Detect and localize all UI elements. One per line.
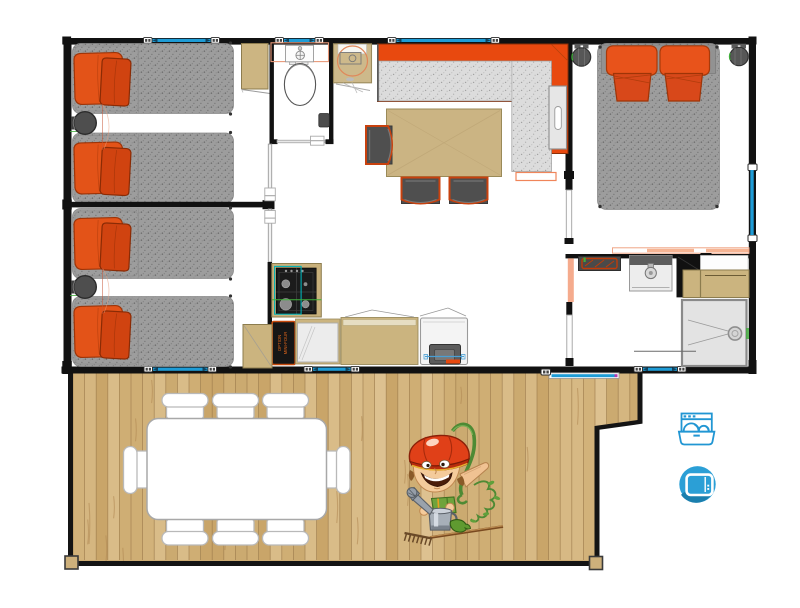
svg-text:MINI-FOUR: MINI-FOUR: [283, 332, 288, 355]
svg-text:OPTION: OPTION: [277, 335, 282, 351]
